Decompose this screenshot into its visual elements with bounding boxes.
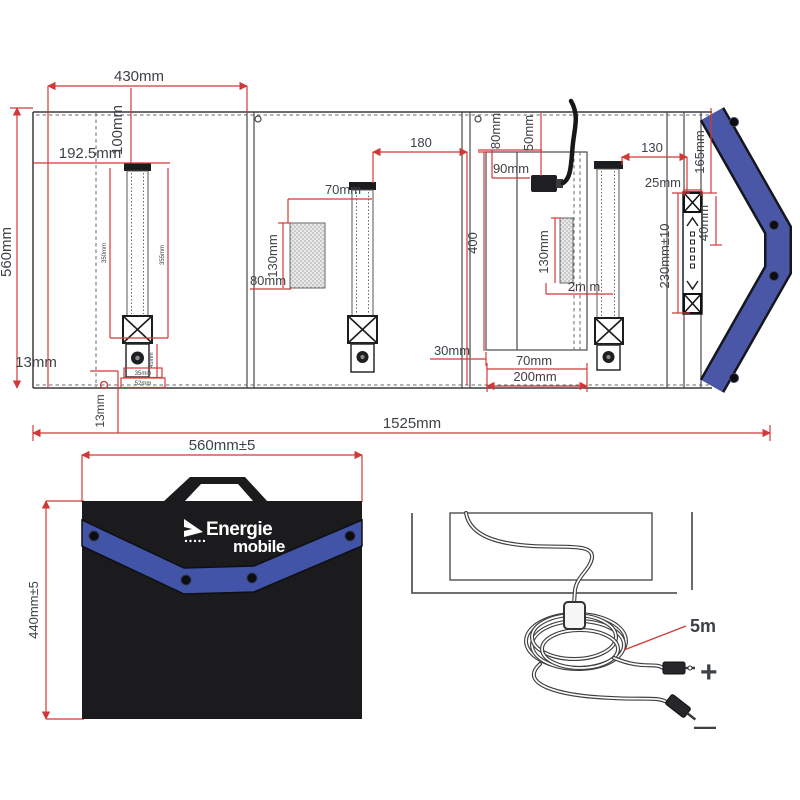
buckle-icon xyxy=(595,318,623,344)
dim-cable-offset-h: 80mm xyxy=(488,113,503,149)
dim-pocket-to-strap: 70mm xyxy=(325,182,361,197)
dim-edge-buckle: 40mm xyxy=(696,205,711,241)
dim-strap-base: 52mm xyxy=(135,381,152,387)
dim-grommet-offset-v: 13mm xyxy=(93,394,107,427)
dim-edge-to-strap: 130 xyxy=(641,140,663,155)
cable-drawing: 5m + — xyxy=(412,512,718,739)
cable-coil xyxy=(466,513,670,704)
dim-panel-height: 560mm xyxy=(0,227,15,277)
plus-symbol: + xyxy=(700,656,718,689)
dim-bottom-margin: 30mm xyxy=(434,343,470,358)
rivet-icon xyxy=(247,573,257,583)
dim-bottom-pocket: 70mm xyxy=(516,353,552,368)
grommet-icon xyxy=(255,116,261,122)
brand-line2: mobile xyxy=(233,537,285,556)
plus-connector-icon xyxy=(663,662,695,674)
unfolded-panel-drawing: 430mm 192.5mm 100mm 560mm 13mm 13mm 1525… xyxy=(0,68,779,441)
cable-length-label: 5m xyxy=(690,616,716,636)
folded-bag-drawing: 560mm±5 440mm±5 Energie mobile xyxy=(26,437,362,719)
dim-strap-width: 35mm xyxy=(135,371,152,377)
dim-total-width: 1525mm xyxy=(383,415,441,432)
pocket-panel3 xyxy=(560,218,573,283)
dim-connector-offset: 90mm xyxy=(493,161,529,176)
buckle-icon xyxy=(684,294,701,313)
dim-strap-len-right: 355mm xyxy=(160,245,166,265)
rivet-icon xyxy=(345,531,355,541)
snap-plate-icon xyxy=(597,345,620,370)
pocket-panel2 xyxy=(290,223,325,288)
dim-frame-height: 400 xyxy=(465,232,480,254)
dim-edge-width: 25mm xyxy=(645,175,681,190)
solar-panel-technical-drawing: 430mm 192.5mm 100mm 560mm 13mm 13mm 1525… xyxy=(0,0,800,800)
dim-panel-width: 430mm xyxy=(114,68,164,85)
cable-icon xyxy=(563,101,576,183)
strap-panel2 xyxy=(348,182,377,372)
dim-folded-width: 560mm±5 xyxy=(189,437,256,454)
dim-bottom-frame: 200mm xyxy=(513,369,556,384)
dim-cable-offset-v: 50mm xyxy=(521,115,536,151)
dim-strap-len-left: 350mm xyxy=(102,243,108,263)
blue-corner-flap xyxy=(712,114,779,386)
cable-clip-icon xyxy=(564,602,585,629)
rivet-icon xyxy=(89,531,99,541)
dim-pocket3-height: 130mm xyxy=(536,230,551,273)
dim-edge-top-offset: 165mm xyxy=(692,130,707,173)
dim-grommet-offset: 13mm xyxy=(15,354,57,371)
cable-length-leader xyxy=(624,626,686,650)
rivet-icon xyxy=(181,575,191,585)
dim-strap-to-edge: 180 xyxy=(410,135,432,150)
strap-panel3 xyxy=(594,161,623,370)
grommet-icon xyxy=(475,116,481,122)
dim-strap-top-offset: 100mm xyxy=(109,105,126,155)
buckle-icon xyxy=(348,316,377,343)
dim-pocket-bottom: 80mm xyxy=(250,273,286,288)
dim-pocket-height: 130mm xyxy=(265,234,280,277)
bag-handle xyxy=(163,477,268,502)
minus-symbol: — xyxy=(694,714,716,739)
rivet-icon xyxy=(770,221,779,230)
snap-plate-icon xyxy=(351,344,374,372)
panel-back-outline xyxy=(412,512,692,593)
buckle-icon xyxy=(123,316,152,343)
dim-snap-len: 45mm xyxy=(149,352,155,368)
rivet-icon xyxy=(770,272,779,281)
dim-edge-strap-len: 230mm±10 xyxy=(657,224,672,289)
dim-pocket3-gap: 2m m xyxy=(568,279,601,294)
rivet-icon xyxy=(730,374,739,383)
rivet-icon xyxy=(730,118,739,127)
dim-folded-height: 440mm±5 xyxy=(26,581,41,639)
strap-panel1 xyxy=(123,163,152,377)
drawing-canvas: 430mm 192.5mm 100mm 560mm 13mm 13mm 1525… xyxy=(0,0,800,800)
